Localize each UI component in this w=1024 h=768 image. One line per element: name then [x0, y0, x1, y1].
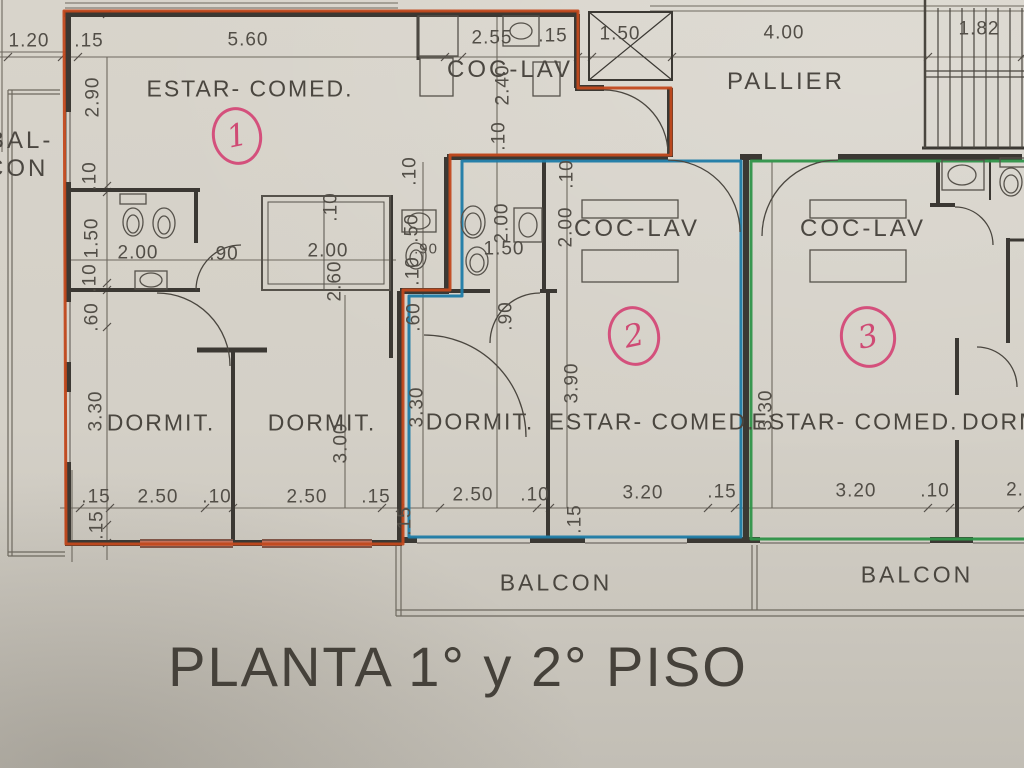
room-label-apt3-bedroom: DORMIT.: [962, 411, 1024, 434]
room-label-balcony-left-1: BAL-: [0, 129, 53, 153]
dim-apt2-bath-width: 1.50: [484, 240, 525, 259]
dim-top-1: .15: [74, 32, 103, 51]
room-label-apt1-bedroom-a: DORMIT.: [107, 412, 216, 435]
unit-2-number: 2: [621, 316, 648, 355]
dim-bottom-7: 3.20: [623, 484, 664, 503]
dim-apt1-bath-door: .90: [209, 245, 238, 264]
dim-top-6: 4.00: [764, 24, 805, 43]
dim-apt2-bed-depth: 3.30: [408, 387, 427, 428]
dim-apt1-kitchen-depth: 2.40: [494, 65, 513, 106]
dim-top-4: .15: [538, 27, 567, 46]
dim-apt2-bath-small: .90: [414, 242, 438, 257]
dim-apt2-kitchen-depth: 2.00: [557, 207, 576, 248]
room-label-apt2-living: ESTAR- COMED.: [548, 411, 755, 434]
dim-left-0: 2.90: [84, 77, 103, 118]
dim-bottom-1: 2.50: [138, 488, 179, 507]
dim-bottom-6: .10: [520, 486, 549, 505]
dim-bottom-5: 2.50: [453, 486, 494, 505]
dim-left-1: .10: [81, 161, 100, 190]
dim-apt2-hall: .60: [405, 302, 424, 331]
dim-apt1-ward-height: 2.60: [326, 261, 345, 302]
sheet-title: PLANTA 1° y 2° PISO: [168, 639, 748, 695]
room-label-balcony-right: BALCON: [861, 564, 974, 587]
dim-apt2-corner2: .15: [566, 504, 585, 533]
dim-apt2-door: .90: [497, 301, 516, 330]
dim-bottom-8: .15: [707, 483, 736, 502]
dim-apt2-wall-top: .10: [401, 156, 420, 185]
dim-left-3: .10: [81, 263, 100, 292]
dim-apt1-bed2-width: 3.00: [332, 423, 351, 464]
elevator-shaft-icon: [589, 12, 672, 80]
room-label-apt2-kitchen: COC-LAV: [574, 217, 700, 241]
room-label-apt1-bedroom-b: DORMIT.: [268, 412, 377, 435]
room-label-apt3-kitchen: COC-LAV: [800, 217, 926, 241]
room-label-balcony-mid: BALCON: [500, 572, 613, 595]
dim-bottom-0: .15: [81, 488, 110, 507]
dim-left-2: 1.50: [83, 218, 102, 259]
floor-plan-photo: ESTAR- COMED. COC-LAV PALLIER COC-LAV CO…: [0, 0, 1024, 768]
dim-apt2-bath-left: .50: [403, 213, 422, 242]
room-label-apt3-living: ESTAR- COMED.: [751, 411, 958, 434]
door-swings: [157, 90, 1017, 437]
room-label-apt1-living: ESTAR- COMED.: [146, 78, 353, 101]
dim-top-3: 2.55: [472, 29, 513, 48]
unit-3-number: 3: [855, 317, 882, 356]
room-label-pallier: PALLIER: [727, 70, 845, 94]
dim-top-2: 5.60: [228, 31, 269, 50]
dim-apt2-wall-mid: .10: [404, 256, 423, 285]
dim-bottom-2: .10: [202, 488, 231, 507]
dim-apt2-living-depth: 3.90: [563, 363, 582, 404]
dim-top-0: 1.20: [9, 32, 50, 51]
room-label-balcony-left-2: CON: [0, 157, 48, 181]
dim-bottom-3: 2.50: [287, 488, 328, 507]
unit-1-number: 1: [224, 116, 251, 155]
dim-bottom-11: 2.: [1006, 481, 1024, 500]
dim-left-6: .15: [88, 510, 107, 539]
dim-apt2-kitchen-wall: .10: [558, 159, 577, 188]
dim-left-5: 3.30: [87, 391, 106, 432]
dim-top-5: 1.50: [600, 25, 641, 44]
dim-apt2-corner: .15: [396, 506, 415, 535]
room-label-apt2-bedroom: DORMIT.: [426, 411, 535, 434]
dim-apt1-ward-depth: .10: [322, 192, 341, 221]
dim-apt3-bed-depth: 3.30: [757, 390, 776, 431]
dim-top-7: 1.82: [959, 20, 1000, 39]
dim-bottom-9: 3.20: [836, 482, 877, 501]
dim-apt2-bath-depth: 2.00: [493, 203, 512, 244]
dim-apt1-kitchen-wall: .10: [490, 121, 509, 150]
dim-left-4: .60: [83, 302, 102, 331]
dim-bottom-4: .15: [361, 488, 390, 507]
dim-bottom-10: .10: [920, 482, 949, 501]
dim-apt1-ward-width: 2.00: [308, 242, 349, 261]
dim-apt1-bath-width: 2.00: [118, 244, 159, 263]
